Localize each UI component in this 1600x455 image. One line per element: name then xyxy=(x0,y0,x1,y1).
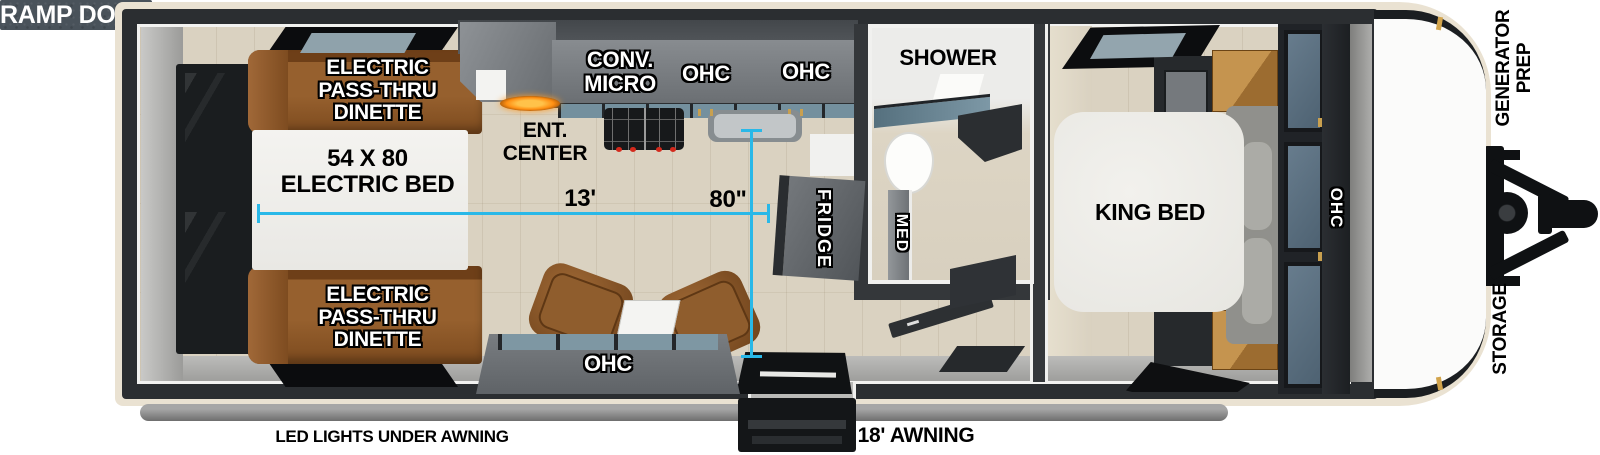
entertainment-center-cabinet xyxy=(460,22,556,102)
kitchen-sink-basin xyxy=(714,114,796,138)
bedroom-skylight-pane xyxy=(1090,33,1186,59)
dinette-top-armrest xyxy=(248,50,288,134)
cabinet-handle xyxy=(698,109,701,116)
ent-center-label-line1: ENT. xyxy=(500,120,590,143)
awning-label: 18' AWNING xyxy=(846,425,986,448)
dimension-tick-right xyxy=(767,204,770,223)
med-label: MED xyxy=(892,198,910,268)
king-bed-label: KING BED xyxy=(1060,200,1240,225)
shower-label: SHOWER xyxy=(888,46,1008,70)
cooktop xyxy=(604,108,684,150)
dimension-tick-left xyxy=(257,204,260,223)
fireplace-flame xyxy=(500,96,560,111)
kitchen-ohc-right-label: OHC xyxy=(780,60,832,84)
fireplace-insert xyxy=(476,70,506,100)
dinette-top-label: ELECTRIC PASS-THRU DINETTE xyxy=(285,57,470,125)
led-lights-label: LED LIGHTS UNDER AWNING xyxy=(262,428,522,446)
cooktop-knob xyxy=(670,147,676,152)
dimension-line-80in xyxy=(750,131,753,357)
awning-bar xyxy=(140,404,1228,421)
conv-micro-label: CONV. MICRO xyxy=(575,48,665,96)
dinette-bottom-label: ELECTRIC PASS-THRU DINETTE xyxy=(285,284,470,352)
dinette-bottom-label-line3: DINETTE xyxy=(285,329,470,352)
wardrobe-glass-top xyxy=(1284,30,1324,132)
cooktop-knob xyxy=(630,147,636,152)
living-overhead-cabinet-glass xyxy=(498,334,718,350)
entry-fold-step-tread2 xyxy=(752,436,842,444)
cabinet-handle xyxy=(710,109,713,116)
wardrobe-handle xyxy=(1318,252,1322,261)
cabinet-handle xyxy=(800,109,803,116)
bedroom-cabinet-dark-bottom xyxy=(1154,308,1212,366)
dinette-top-label-line2: PASS-THRU xyxy=(285,80,470,103)
front-cap xyxy=(1374,10,1486,398)
ent-center-label-line2: CENTER xyxy=(500,143,590,166)
bedroom-ohc-label: OHC xyxy=(1327,178,1345,238)
entry-fold-step-tread1 xyxy=(748,420,846,429)
counter-end xyxy=(810,134,856,176)
dinette-top-label-line1: ELECTRIC xyxy=(285,57,470,80)
generator-prep-label-line2: PREP xyxy=(1514,3,1535,133)
wardrobe-glass-bottom xyxy=(1284,262,1324,388)
wardrobe-handle xyxy=(1318,118,1322,127)
dimension-length-label: 13' xyxy=(550,186,610,212)
front-wall-face xyxy=(1350,24,1372,382)
floorplan-stage: RAMP DOOR ELECTRIC PASS-THRU DINETTE 54 … xyxy=(0,0,1600,455)
dinette-bottom-armrest xyxy=(248,266,288,364)
generator-prep-label-line1: GENERATOR xyxy=(1493,3,1514,133)
ent-center-label: ENT. CENTER xyxy=(500,120,590,165)
electric-bed-label-line1: 54 X 80 xyxy=(275,146,460,172)
electric-bed-label-line2: ELECTRIC BED xyxy=(275,172,460,198)
conv-micro-label-line2: MICRO xyxy=(575,72,665,96)
pillow-bottom xyxy=(1240,236,1274,326)
pillow-top xyxy=(1240,140,1274,232)
hitch-coupler xyxy=(1538,194,1552,234)
cooktop-knob xyxy=(616,147,622,152)
hitch-cross-top xyxy=(1486,150,1520,160)
dimension-line-13ft xyxy=(259,212,769,215)
tongue-jack xyxy=(1486,192,1528,234)
conv-micro-label-line1: CONV. xyxy=(575,48,665,72)
bathroom-door-handle xyxy=(907,320,919,326)
dinette-top-label-line3: DINETTE xyxy=(285,102,470,125)
dinette-bottom-label-line1: ELECTRIC xyxy=(285,284,470,307)
nightstand-top xyxy=(1212,50,1278,112)
living-ohc-label: OHC xyxy=(576,352,640,376)
generator-prep-label: GENERATOR PREP xyxy=(1493,3,1537,133)
kitchen-ohc-left-label: OHC xyxy=(680,62,732,86)
fridge-label: FRIDGE xyxy=(813,184,833,274)
wardrobe-glass-middle xyxy=(1284,142,1324,252)
cooktop-knob xyxy=(656,147,662,152)
dimension-tick-bottom xyxy=(741,355,762,358)
dimension-width-label: 80" xyxy=(700,187,756,213)
dinette-bottom-label-line2: PASS-THRU xyxy=(285,307,470,330)
electric-bed-label: 54 X 80 ELECTRIC BED xyxy=(275,146,460,198)
roof-vent-rear-top-pane xyxy=(300,33,416,53)
storage-label: STORAGE xyxy=(1491,279,1513,379)
dimension-tick-top xyxy=(741,129,762,132)
